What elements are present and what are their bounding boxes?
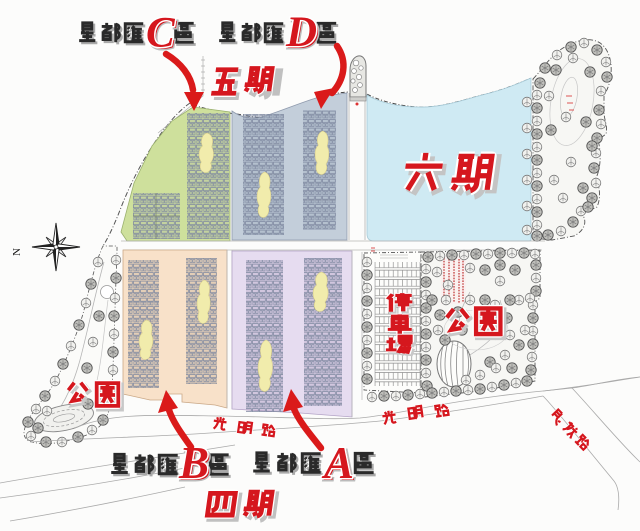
svg-text:D: D [285,9,317,56]
svg-text:N: N [11,248,23,256]
svg-text:A: A [321,438,354,488]
svg-text:C: C [146,10,176,57]
